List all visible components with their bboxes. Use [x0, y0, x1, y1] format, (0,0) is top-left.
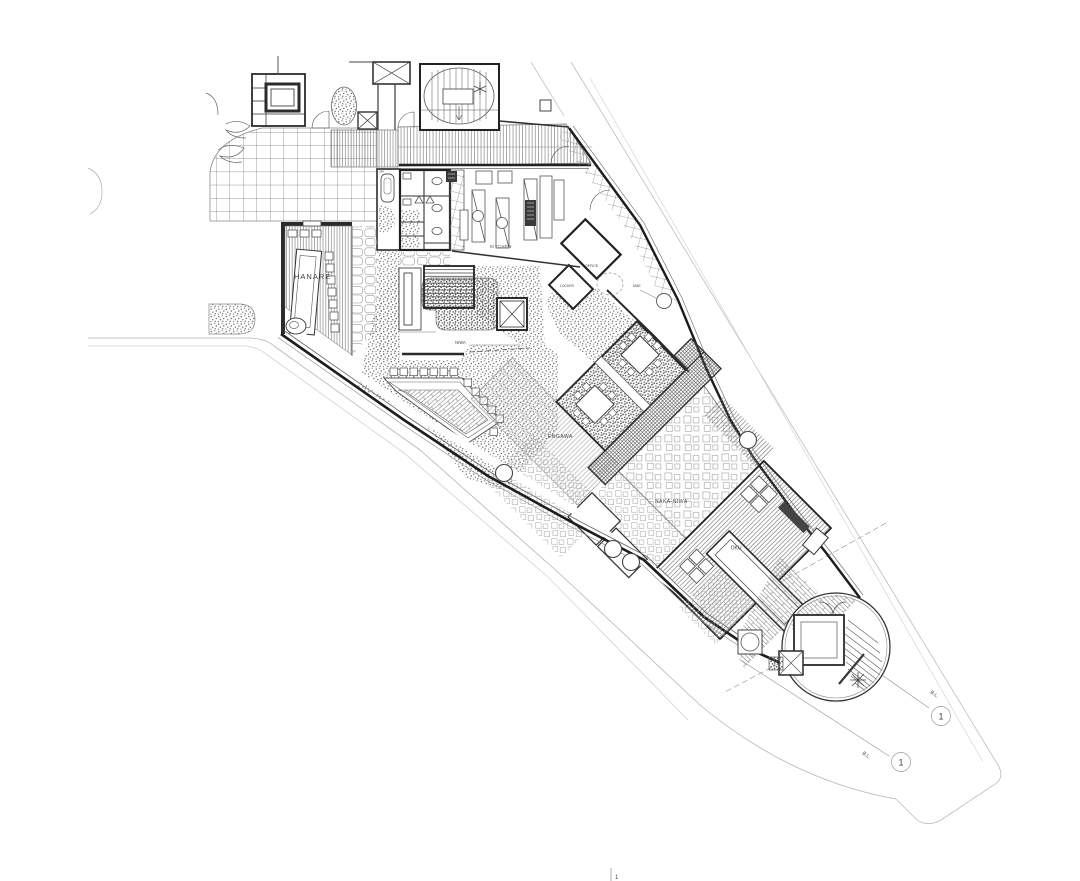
- svg-text:M&E: M&E: [633, 284, 641, 288]
- svg-text:1: 1: [898, 758, 903, 768]
- svg-text:NAKA-NIWA: NAKA-NIWA: [655, 499, 688, 505]
- svg-text:KITCHEN: KITCHEN: [490, 244, 512, 249]
- svg-text:ENGAWA: ENGAWA: [548, 434, 573, 440]
- svg-text:OFFICE: OFFICE: [585, 264, 599, 268]
- svg-text:SPA: SPA: [379, 170, 384, 174]
- svg-text:1: 1: [938, 712, 943, 722]
- svg-text:OKU: OKU: [731, 545, 742, 551]
- svg-text:HANARE: HANARE: [294, 272, 331, 281]
- svg-text:NIWA: NIWA: [455, 340, 466, 345]
- svg-text:LOCKER: LOCKER: [560, 284, 574, 288]
